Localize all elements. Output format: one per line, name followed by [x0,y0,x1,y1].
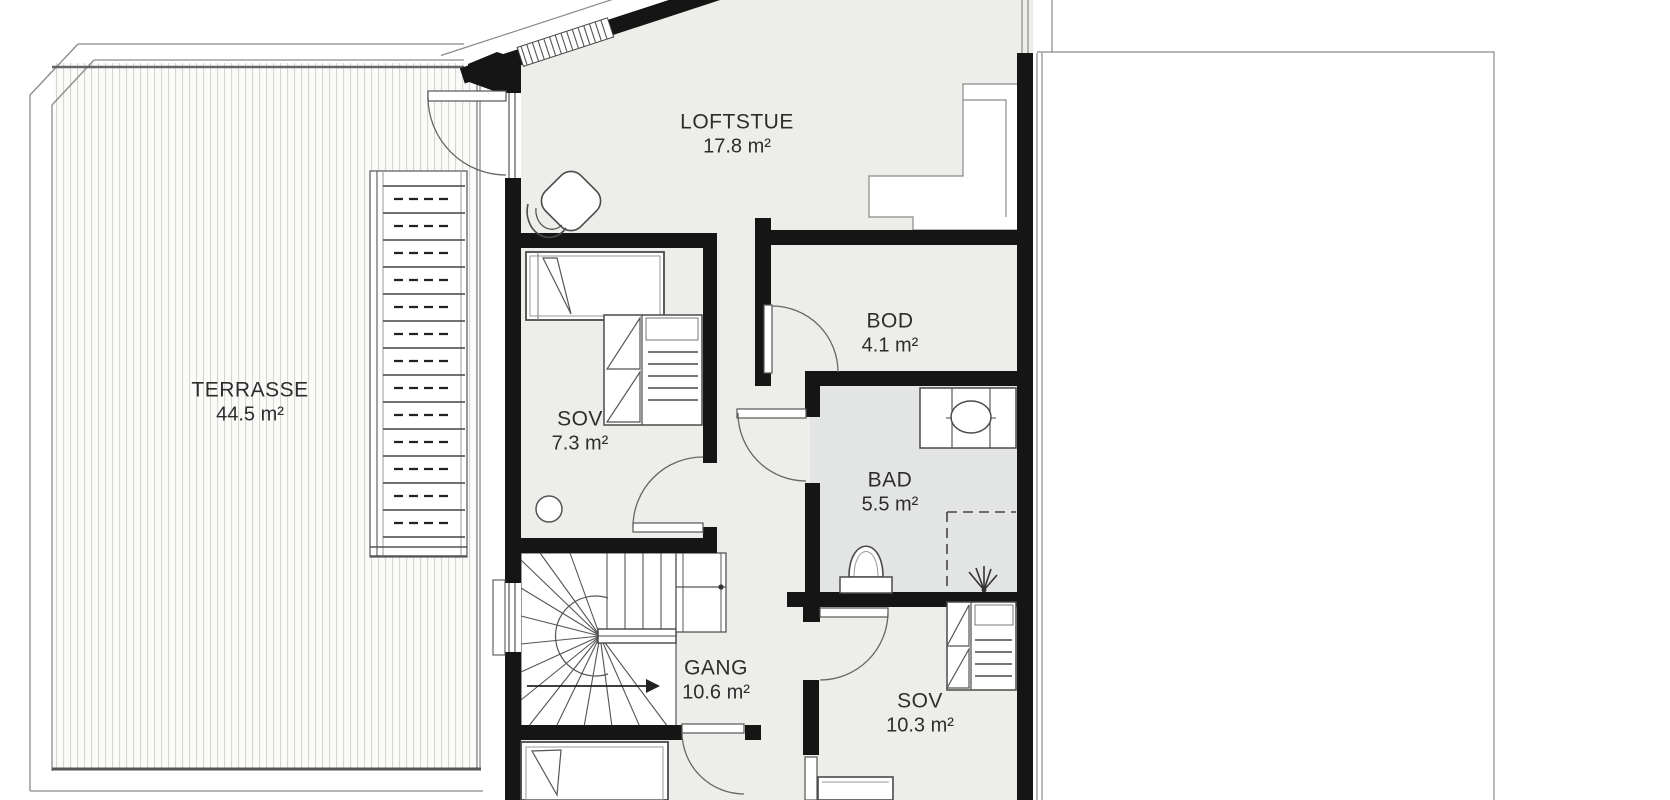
bed-icon [526,252,664,320]
floor-plan: LOFTSTUE 17.8 m² BOD 4.1 m² SOV 7.3 m² B… [0,0,1670,800]
floor-plan-drawing [0,0,1670,800]
door-leaf [428,91,506,101]
winder-stair-icon [521,553,676,727]
bed-icon [818,777,893,800]
vanity-sink-icon [920,388,1016,448]
stool-icon [536,496,562,522]
stair-window [493,580,521,655]
exterior-outline [1022,0,1494,800]
door-leaf-open [805,757,817,800]
bed-icon [521,742,668,800]
wardrobe-icon [947,602,1016,690]
terrace [30,44,483,791]
stair-railing [676,553,726,632]
terrace-stair-icon [370,171,467,557]
wardrobe-icon [604,315,702,425]
